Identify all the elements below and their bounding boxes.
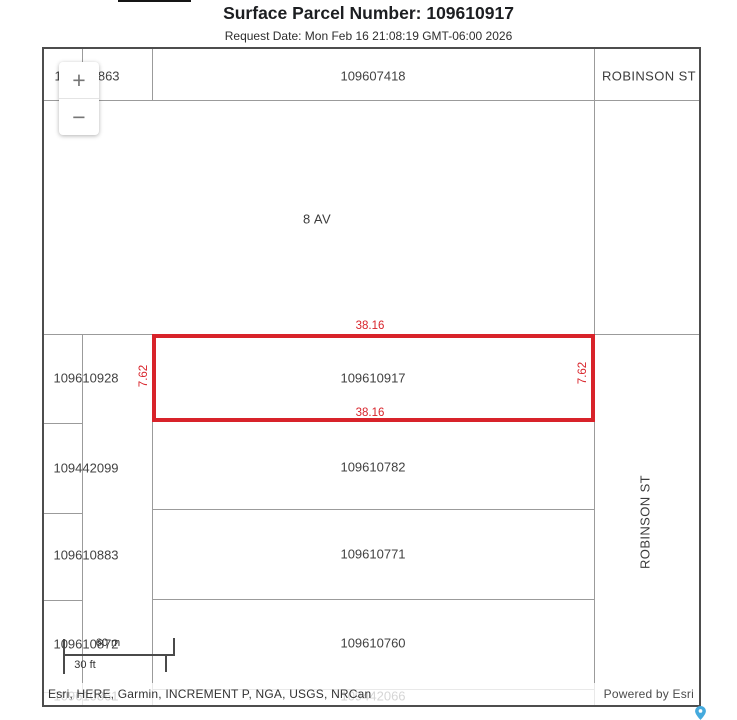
parcel-boundary-line [44, 600, 82, 601]
parcel-boundary-line [152, 509, 594, 510]
parcel-boundary-line [594, 334, 699, 335]
parcel-boundary-line [44, 513, 82, 514]
request-date: Request Date: Mon Feb 16 21:08:19 GMT-06… [0, 29, 737, 43]
esri-pin-icon[interactable] [695, 706, 706, 720]
parcel-boundary-line [152, 49, 153, 100]
parcel-boundary-line [44, 100, 699, 101]
scale-bar-tick [173, 638, 175, 655]
parcel-label-109610760: 109610760 [340, 636, 405, 651]
zoom-in-button[interactable]: + [59, 62, 99, 98]
scale-metric-label: 60 m [96, 637, 120, 649]
powered-by-esri-link[interactable]: Powered by Esri [604, 687, 694, 701]
map-canvas[interactable]: 109610863 109607418 ROBINSON ST 8 AV 109… [42, 47, 701, 707]
dimension-label-top: 38.16 [356, 320, 385, 332]
scale-bar-tick [165, 655, 167, 672]
street-label-robinson-top: ROBINSON ST [602, 69, 696, 84]
parcel-boundary-line [152, 599, 594, 600]
parcel-label-109442099: 109442099 [53, 461, 118, 476]
parcel-boundary-line [44, 423, 82, 424]
zoom-out-button[interactable]: − [59, 98, 99, 135]
dimension-label-left: 7.62 [138, 365, 150, 387]
selected-parcel-number: 109610917 [340, 371, 405, 386]
parcel-label-109610883: 109610883 [53, 548, 118, 563]
attribution-sources: Esri, HERE, Garmin, INCREMENT P, NGA, US… [48, 687, 371, 701]
scale-bar-line [63, 654, 175, 656]
parcel-label-109610928: 109610928 [53, 371, 118, 386]
attribution-bar: Esri, HERE, Garmin, INCREMENT P, NGA, US… [44, 683, 699, 705]
scale-imperial-label: 30 ft [74, 659, 95, 671]
zoom-control: + − [59, 62, 99, 135]
parcel-report-page: Surface Parcel Number: 109610917 Request… [0, 0, 737, 720]
parcel-label-109610771: 109610771 [340, 547, 405, 562]
window-edge-artifact [118, 0, 191, 2]
dimension-label-bottom: 38.16 [356, 407, 385, 419]
street-label-8av: 8 AV [303, 212, 331, 227]
dimension-label-right: 7.62 [577, 362, 589, 384]
parcel-boundary-line [44, 334, 152, 335]
scale-bar-tick [63, 639, 65, 674]
page-title: Surface Parcel Number: 109610917 [0, 3, 737, 24]
street-label-robinson-side: ROBINSON ST [638, 475, 653, 569]
parcel-label-109607418: 109607418 [340, 69, 405, 84]
parcel-boundary-line [152, 422, 153, 705]
parcel-label-109610782: 109610782 [340, 460, 405, 475]
